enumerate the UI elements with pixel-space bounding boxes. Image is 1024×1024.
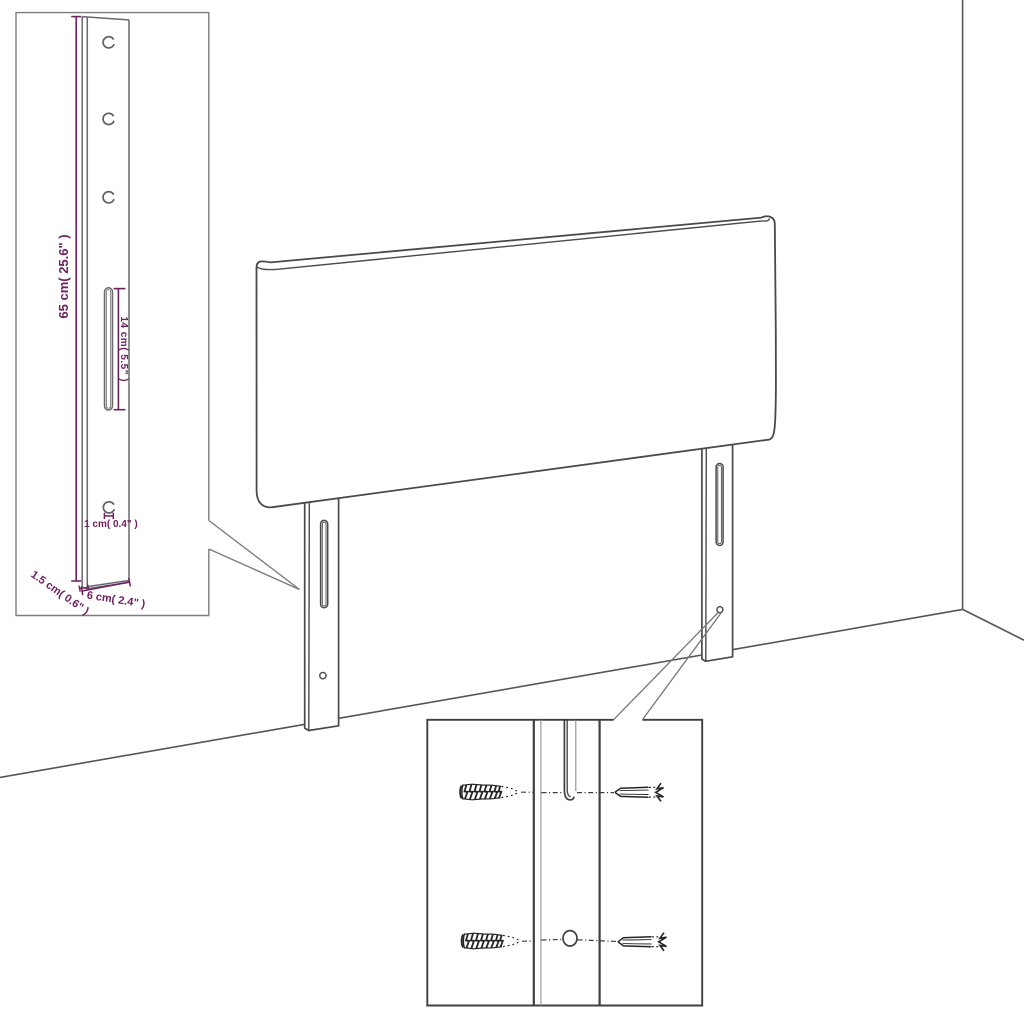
svg-text:1 cm( 0.4" ): 1 cm( 0.4" ) bbox=[84, 519, 138, 530]
svg-text:14 cm( 5.5" ): 14 cm( 5.5" ) bbox=[118, 316, 129, 382]
svg-text:65 cm( 25.6" ): 65 cm( 25.6" ) bbox=[56, 234, 71, 318]
